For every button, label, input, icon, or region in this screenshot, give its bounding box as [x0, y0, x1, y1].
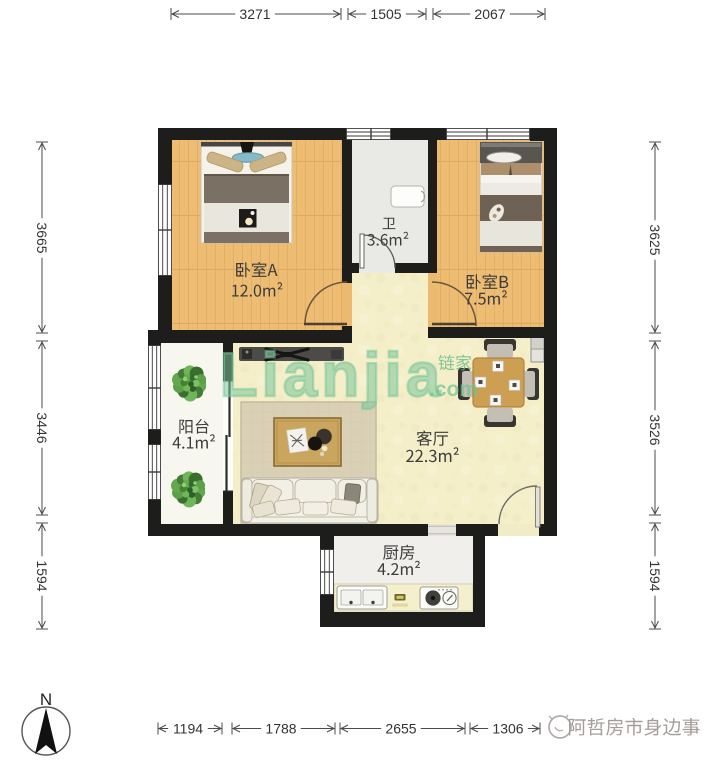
svg-text:1505: 1505: [370, 6, 401, 22]
svg-text:1594: 1594: [34, 560, 50, 591]
svg-text:.com: .com: [429, 378, 478, 401]
svg-text:1194: 1194: [173, 720, 203, 736]
svg-text:3665: 3665: [34, 222, 50, 253]
svg-text:2655: 2655: [385, 720, 416, 736]
svg-text:1594: 1594: [647, 560, 663, 591]
svg-text:3526: 3526: [647, 414, 663, 445]
svg-text:1788: 1788: [265, 720, 296, 736]
svg-text:Lianjia: Lianjia: [220, 341, 444, 410]
svg-text:2067: 2067: [474, 6, 505, 22]
svg-text:3271: 3271: [239, 6, 270, 22]
svg-text:3625: 3625: [647, 224, 663, 255]
svg-text:3446: 3446: [34, 412, 50, 443]
svg-text:1306: 1306: [492, 720, 523, 736]
svg-text:N: N: [40, 690, 52, 709]
